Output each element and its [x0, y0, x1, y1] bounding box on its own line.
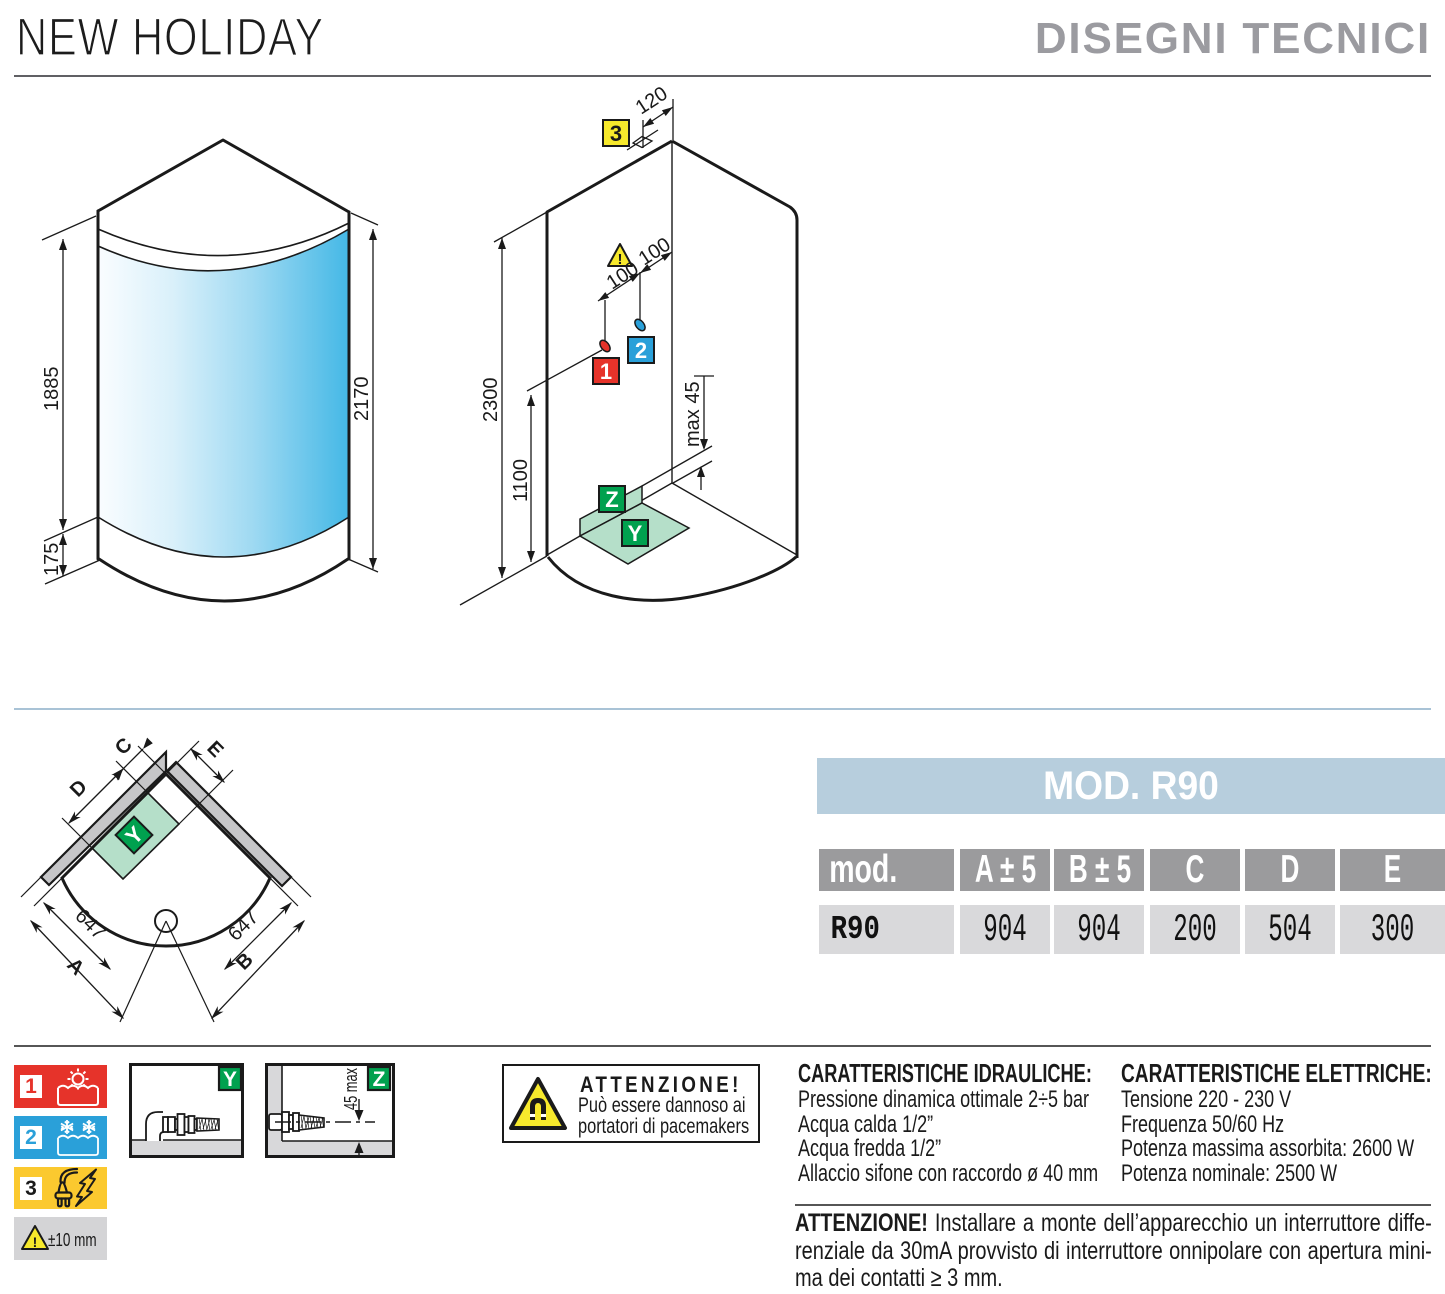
svg-text:Y: Y	[223, 1068, 237, 1091]
svg-text:1100: 1100	[510, 459, 532, 502]
svg-text:Z: Z	[373, 1068, 386, 1091]
svg-text:647: 647	[70, 905, 109, 944]
svg-text:45 max: 45 max	[341, 1068, 361, 1110]
svg-text:B: B	[232, 949, 258, 975]
svg-text:1885: 1885	[41, 367, 63, 412]
svg-text:max 45: max 45	[682, 381, 704, 447]
svg-text:3: 3	[610, 121, 622, 146]
svg-text:2: 2	[635, 338, 647, 363]
svg-text:Z: Z	[605, 487, 618, 512]
svg-text:175: 175	[41, 543, 63, 576]
svg-text:647: 647	[224, 906, 263, 945]
svg-text:100: 100	[635, 234, 675, 271]
svg-text:2170: 2170	[351, 377, 373, 422]
svg-text:C: C	[111, 734, 137, 760]
svg-text:!: !	[33, 1234, 38, 1250]
svg-text:D: D	[66, 776, 92, 802]
svg-text:E: E	[202, 737, 227, 762]
svg-text:Y: Y	[628, 521, 643, 546]
svg-text:2300: 2300	[480, 378, 502, 423]
svg-text:1: 1	[600, 359, 612, 384]
